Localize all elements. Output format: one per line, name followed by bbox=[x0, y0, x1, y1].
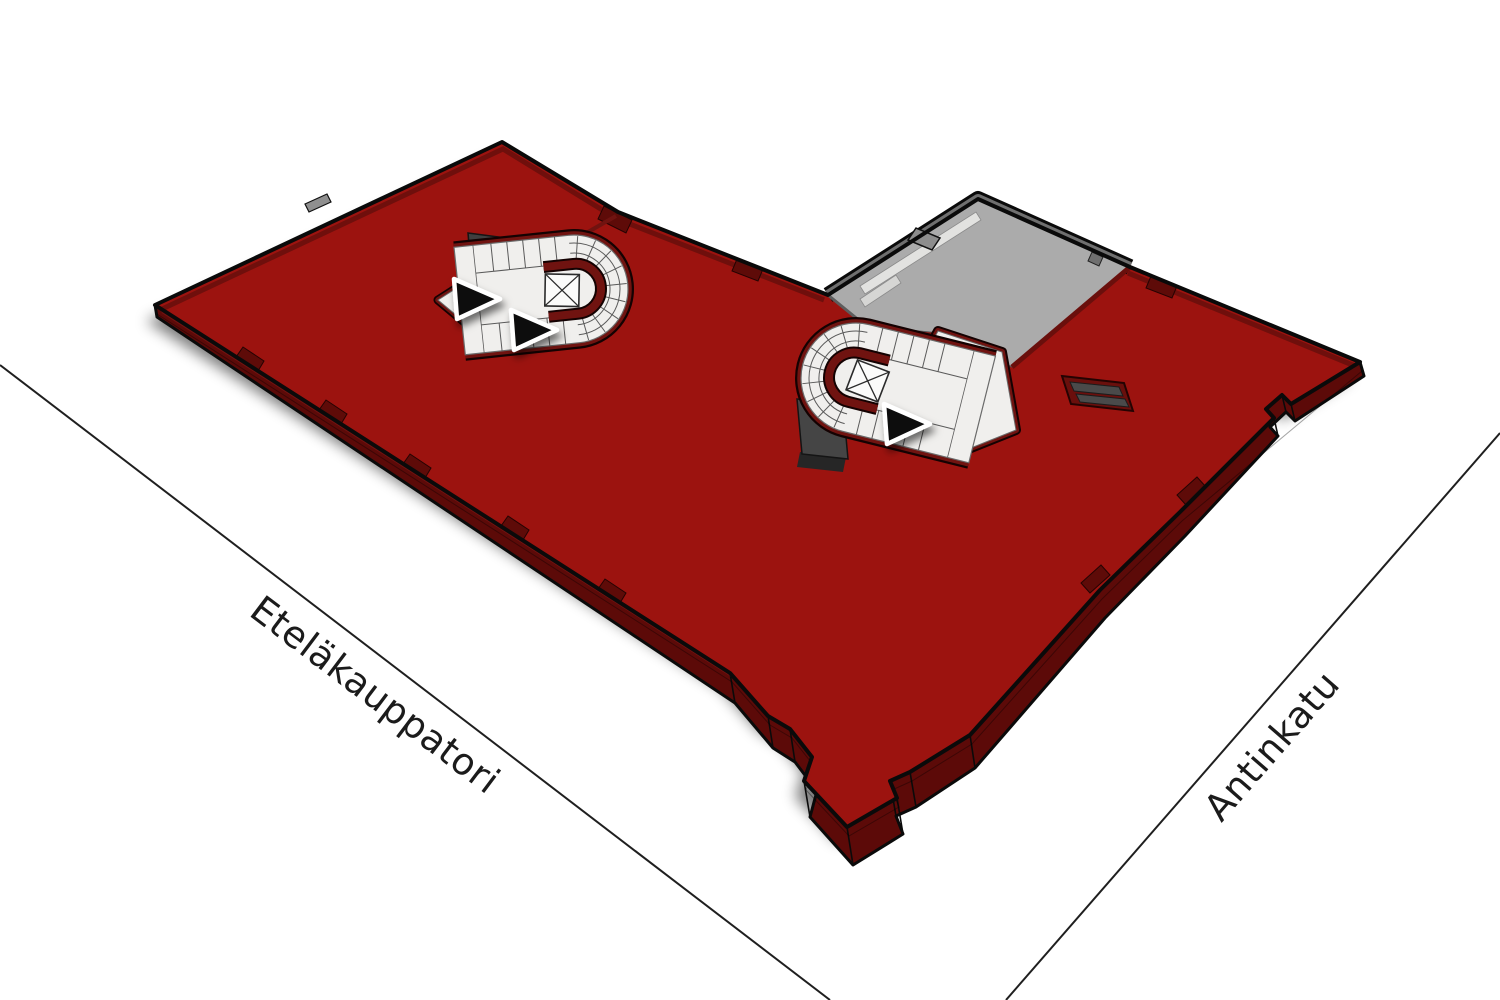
elevator-box bbox=[545, 274, 580, 307]
floorplan-canvas: Eteläkauppatori Antinkatu bbox=[0, 0, 1500, 1000]
floorplan-svg bbox=[0, 0, 1500, 1000]
nw-edge-entrance-tab bbox=[305, 194, 331, 212]
